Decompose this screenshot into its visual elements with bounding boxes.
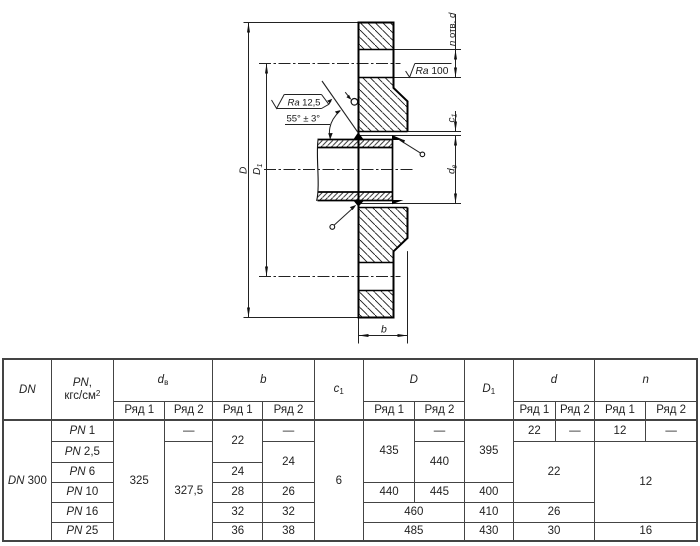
svg-text:c1: c1	[447, 114, 459, 123]
svg-text:D1: D1	[252, 164, 264, 175]
svg-text:D: D	[238, 166, 249, 174]
svg-text:n отв. d: n отв. d	[447, 12, 458, 46]
svg-text:55° ± 3°: 55° ± 3°	[287, 113, 321, 124]
svg-text:b: b	[381, 324, 387, 336]
svg-text:dв: dв	[447, 164, 459, 174]
svg-text:Ra 100: Ra 100	[416, 66, 449, 77]
svg-text:Ra 12,5: Ra 12,5	[288, 97, 321, 108]
